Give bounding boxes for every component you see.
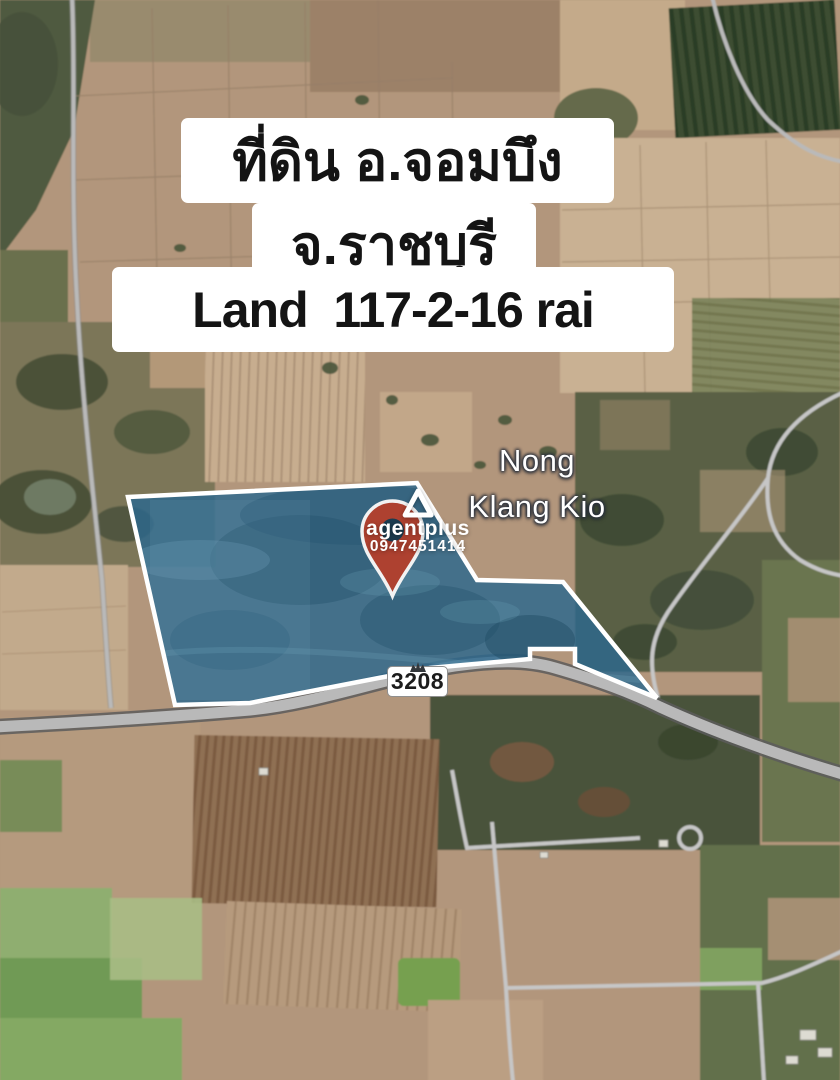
agency-watermark: agentplus 0947451414	[366, 488, 470, 555]
banner-text-line1: ที่ดิน อ.จอมบึง	[232, 118, 562, 204]
place-label-nong-klang-kio: Nong Klang Kio	[468, 438, 605, 530]
banner-text-line3: Land 117-2-16 rai	[192, 281, 594, 339]
route-number: 3208	[391, 668, 444, 695]
route-badge: 3208	[387, 666, 448, 697]
title-banner-line3: Land 117-2-16 rai	[112, 267, 674, 352]
listing-image: Nong Klang Kio 3208 agentplus 0947451414…	[0, 0, 840, 1080]
thai-highway-shield-icon	[410, 662, 426, 672]
place-label-line1: Nong	[468, 438, 605, 484]
triangle-logo-icon	[366, 488, 470, 518]
watermark-brand: agentplus	[366, 519, 470, 539]
place-label-line2: Klang Kio	[468, 484, 605, 530]
title-banner-line1: ที่ดิน อ.จอมบึง	[181, 118, 614, 203]
watermark-phone: 0947451414	[366, 539, 470, 555]
